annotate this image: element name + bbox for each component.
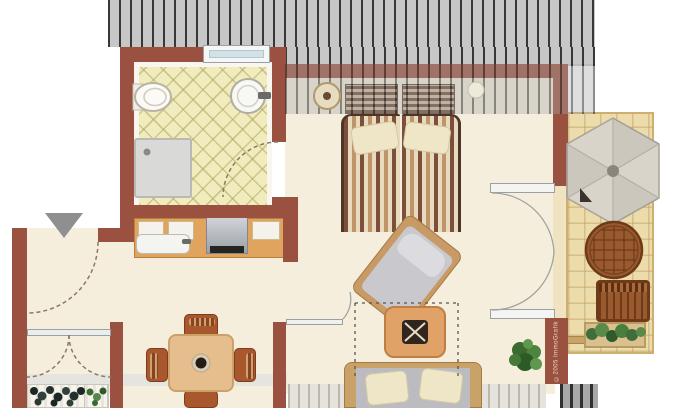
french-window-bottom-left	[27, 329, 111, 336]
shower	[134, 138, 192, 198]
balcony-planter-box	[584, 322, 646, 348]
wall-stub-bottom-left	[110, 322, 123, 408]
sofa-pillow-left	[364, 370, 409, 406]
roof-slope-overlay	[285, 64, 595, 114]
left-outer-wall	[12, 228, 27, 408]
sofa-pillow-right	[418, 368, 464, 405]
bench-backrail	[599, 283, 647, 292]
bathroom-wall-bottom	[134, 205, 286, 218]
watermark-text: ©2005 ImmoGrafik	[545, 318, 568, 384]
bathroom-window-glass	[209, 50, 264, 58]
bathroom-wall-right-upper	[272, 47, 286, 142]
balcony-bench	[596, 280, 650, 322]
living-door-leaf	[286, 319, 343, 325]
kitchen-wall-right	[283, 197, 298, 262]
dining-chair-south	[184, 390, 218, 408]
floor-plan: ©2005 ImmoGrafik	[0, 0, 680, 408]
bathroom-wall-left	[120, 47, 134, 242]
balcony-door-leaf-upper	[490, 183, 555, 193]
hatch-bottom-dark	[560, 384, 598, 408]
kitchen-sink	[136, 234, 190, 254]
stove-handle	[210, 246, 244, 253]
dining-table	[168, 334, 234, 392]
dining-chair-west	[146, 348, 168, 382]
entry-arrow-icon	[45, 213, 83, 238]
entry-wall-stub	[98, 228, 123, 242]
flower-box-right	[84, 384, 108, 408]
coffee-table-motif	[402, 320, 428, 344]
roof-hatch-top	[108, 0, 595, 47]
dining-wall-right	[273, 322, 286, 408]
kitchen-faucet	[182, 239, 191, 244]
kitchen-cabinet	[252, 221, 280, 240]
dining-chair-east	[234, 348, 256, 382]
right-wall-lower: ©2005 ImmoGrafik	[545, 318, 568, 384]
